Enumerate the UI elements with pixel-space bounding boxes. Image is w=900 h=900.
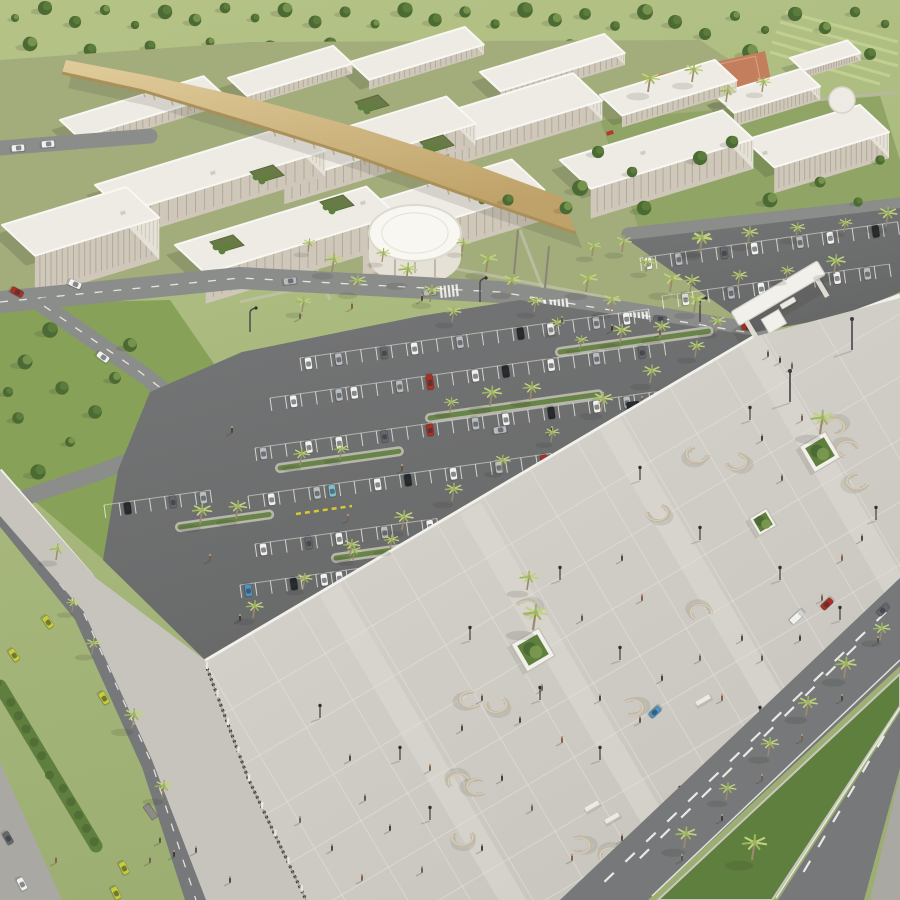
render-canvas — [0, 0, 900, 900]
aerial-render: Aerial architectural rendering of a camp… — [0, 0, 900, 900]
